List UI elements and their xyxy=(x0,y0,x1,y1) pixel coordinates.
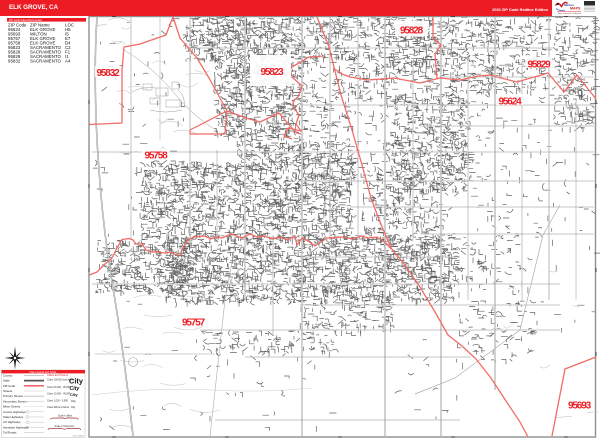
svg-text:95624: 95624 xyxy=(498,97,522,108)
svg-text:95823: 95823 xyxy=(260,67,284,78)
svg-text:Toll Roads: Toll Roads xyxy=(3,431,17,435)
svg-text:95693: 95693 xyxy=(568,401,592,412)
svg-text:Streets: Streets xyxy=(3,389,13,393)
svg-text:95829: 95829 xyxy=(527,60,551,71)
svg-text:City: City xyxy=(70,392,78,397)
svg-text:95758: 95758 xyxy=(144,151,168,162)
svg-text:Scale in Miles: Scale in Miles xyxy=(58,415,73,417)
svg-text:State Highways: State Highways xyxy=(3,415,24,419)
svg-text:Cities 1,000 - 9,999: Cities 1,000 - 9,999 xyxy=(47,399,68,402)
svg-text:City: City xyxy=(71,399,76,403)
svg-text:State: State xyxy=(3,379,10,383)
svg-text:Cities 50,000 - 99,999: Cities 50,000 - 99,999 xyxy=(47,386,71,389)
svg-text:US Highways: US Highways xyxy=(3,420,21,424)
svg-text:©MarketMAPS: ©MarketMAPS xyxy=(72,435,85,438)
svg-text:Scale in Kilometers: Scale in Kilometers xyxy=(55,425,76,428)
svg-text:Interstate Highways: Interstate Highways xyxy=(3,425,29,429)
svg-text:ZIP Code Index/Grid Locator: ZIP Code Index/Grid Locator xyxy=(9,18,42,22)
svg-text:A4: A4 xyxy=(65,59,71,64)
svg-text:Secondary Streets: Secondary Streets xyxy=(3,399,27,403)
svg-text:County: County xyxy=(3,373,13,377)
svg-text:Cities and Towns: Cities and Towns xyxy=(47,373,69,377)
svg-text:Primary Streets: Primary Streets xyxy=(3,394,23,398)
svg-text:MAPS: MAPS xyxy=(570,7,581,11)
svg-text:95832: 95832 xyxy=(8,59,21,64)
svg-text:2020 ZIP Code Redline Edition: 2020 ZIP Code Redline Edition xyxy=(492,7,549,12)
svg-text:95832: 95832 xyxy=(96,68,120,79)
svg-text:City: City xyxy=(69,377,84,386)
svg-text:Cities 999 and below: Cities 999 and below xyxy=(47,406,69,409)
svg-text:ELK GROVE, CA: ELK GROVE, CA xyxy=(9,4,59,11)
svg-text:Cities 10,000 - 49,999: Cities 10,000 - 49,999 xyxy=(47,392,71,395)
svg-text:Maps of Anywhere, for Anyone: Maps of Anywhere, for Anyone xyxy=(558,12,581,15)
svg-text:95757: 95757 xyxy=(182,318,206,329)
svg-text:95828: 95828 xyxy=(400,26,424,37)
svg-text:SACRAMENTO: SACRAMENTO xyxy=(30,59,61,64)
svg-text:Minor Streets: Minor Streets xyxy=(3,405,21,409)
svg-text:County Highways: County Highways xyxy=(3,410,26,414)
svg-text:ZIP Code: ZIP Code xyxy=(3,384,16,388)
